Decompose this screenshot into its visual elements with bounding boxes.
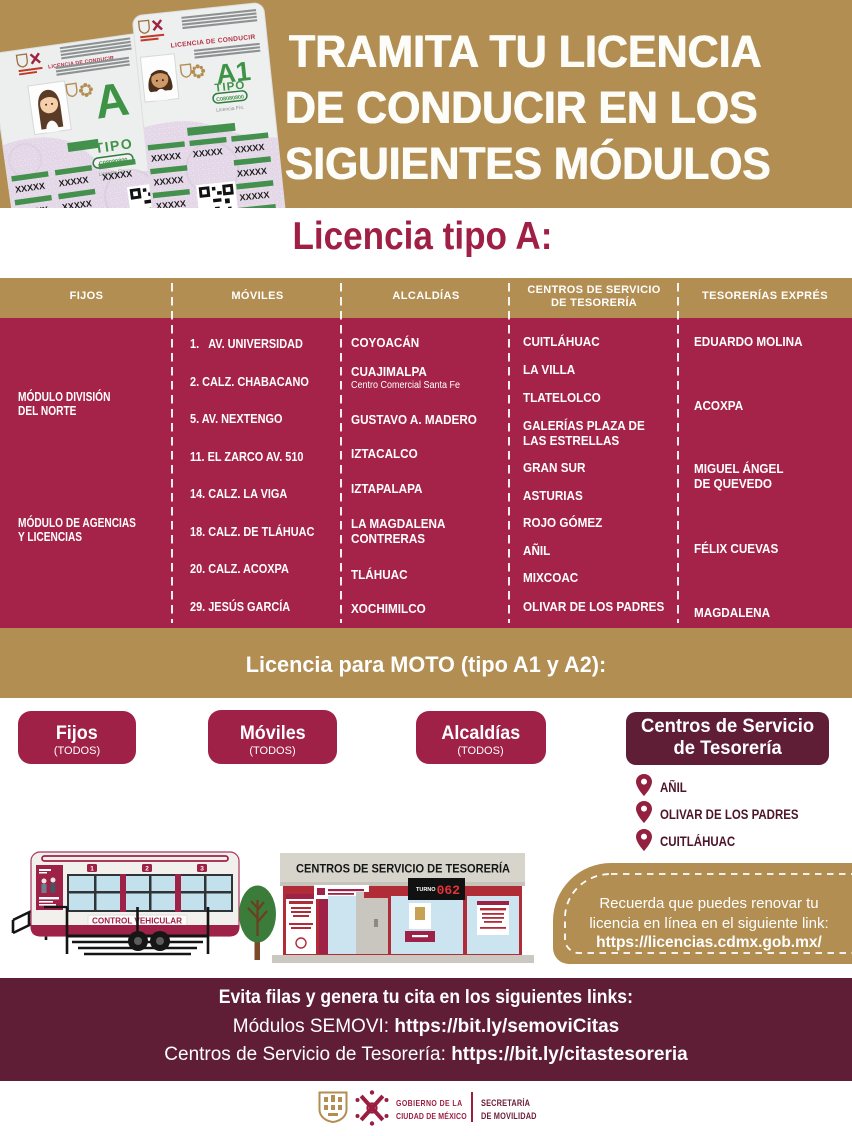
svg-text:1: 1 (90, 866, 94, 873)
svg-text:3: 3 (200, 866, 204, 873)
svg-text:2: 2 (145, 866, 149, 873)
svg-text:TURNO: TURNO (416, 887, 436, 893)
svg-text:062: 062 (437, 883, 461, 898)
svg-text:CENTROS DE SERVICIO DE TESORER: CENTROS DE SERVICIO DE TESORERÍA (296, 861, 510, 876)
